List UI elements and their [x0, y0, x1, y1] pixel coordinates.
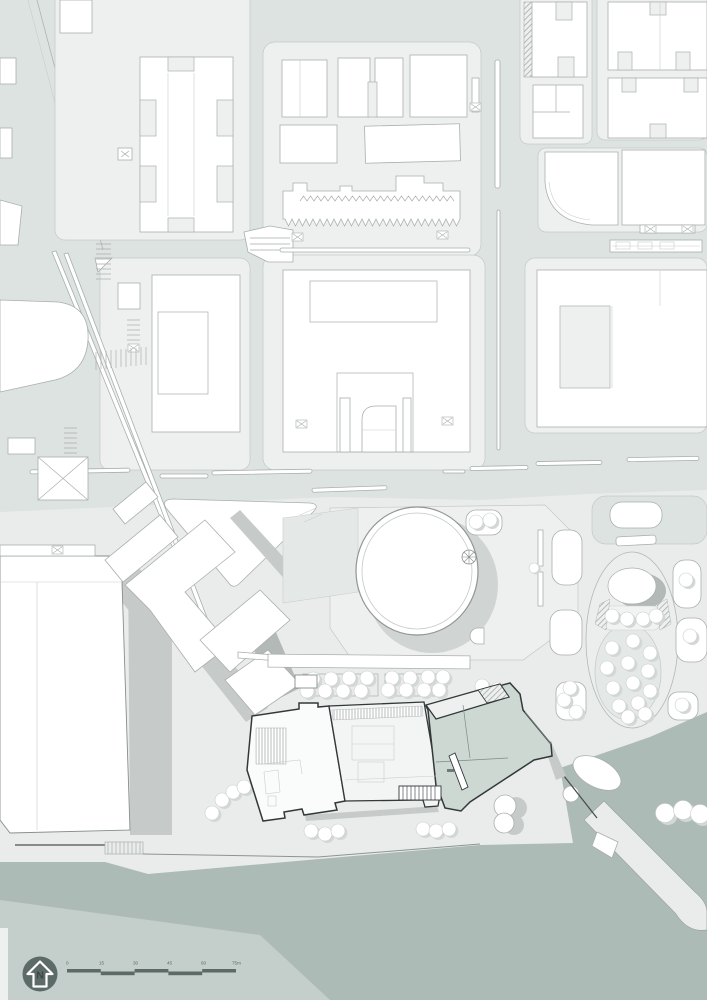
park-pad-2: [550, 610, 582, 655]
map-edge-strip: [0, 928, 8, 1000]
boat-small: [616, 535, 656, 546]
quay-stairs: [105, 842, 143, 854]
scale-label-15: 15: [99, 961, 105, 966]
scale-label-75m: 75m: [232, 961, 241, 966]
site-plan: N 0 15 30 45 60 75m: [0, 0, 707, 1000]
roof-monitor: [295, 675, 317, 688]
clover-pavilion: [494, 795, 527, 835]
kiosk-pad: [610, 502, 662, 528]
terrace-steps: [283, 508, 358, 603]
dome-roof: [356, 507, 478, 635]
north-label: N: [36, 970, 44, 982]
corner-building: [60, 0, 92, 33]
northeast-buildings: [524, 2, 707, 233]
west-large-building: [0, 556, 130, 833]
north-center-buildings: [280, 55, 481, 241]
h-building: [140, 57, 233, 232]
scale-label-30: 30: [133, 961, 139, 966]
mid-center-building: [283, 270, 470, 452]
vent-grille: [399, 786, 441, 800]
pond: [608, 568, 656, 604]
site-plan-svg: N 0 15 30 45 60 75m: [0, 0, 707, 1000]
boat-round: [563, 786, 579, 802]
dome-stair-drum: [462, 550, 476, 564]
canopy-strip: [268, 654, 470, 669]
scale-label-45: 45: [167, 961, 173, 966]
north-arrow: N: [23, 957, 58, 992]
park-pad-1: [552, 530, 582, 585]
d-pavilion: [470, 628, 484, 644]
scale-label-60: 60: [201, 961, 207, 966]
scale-label-0: 0: [66, 961, 69, 966]
